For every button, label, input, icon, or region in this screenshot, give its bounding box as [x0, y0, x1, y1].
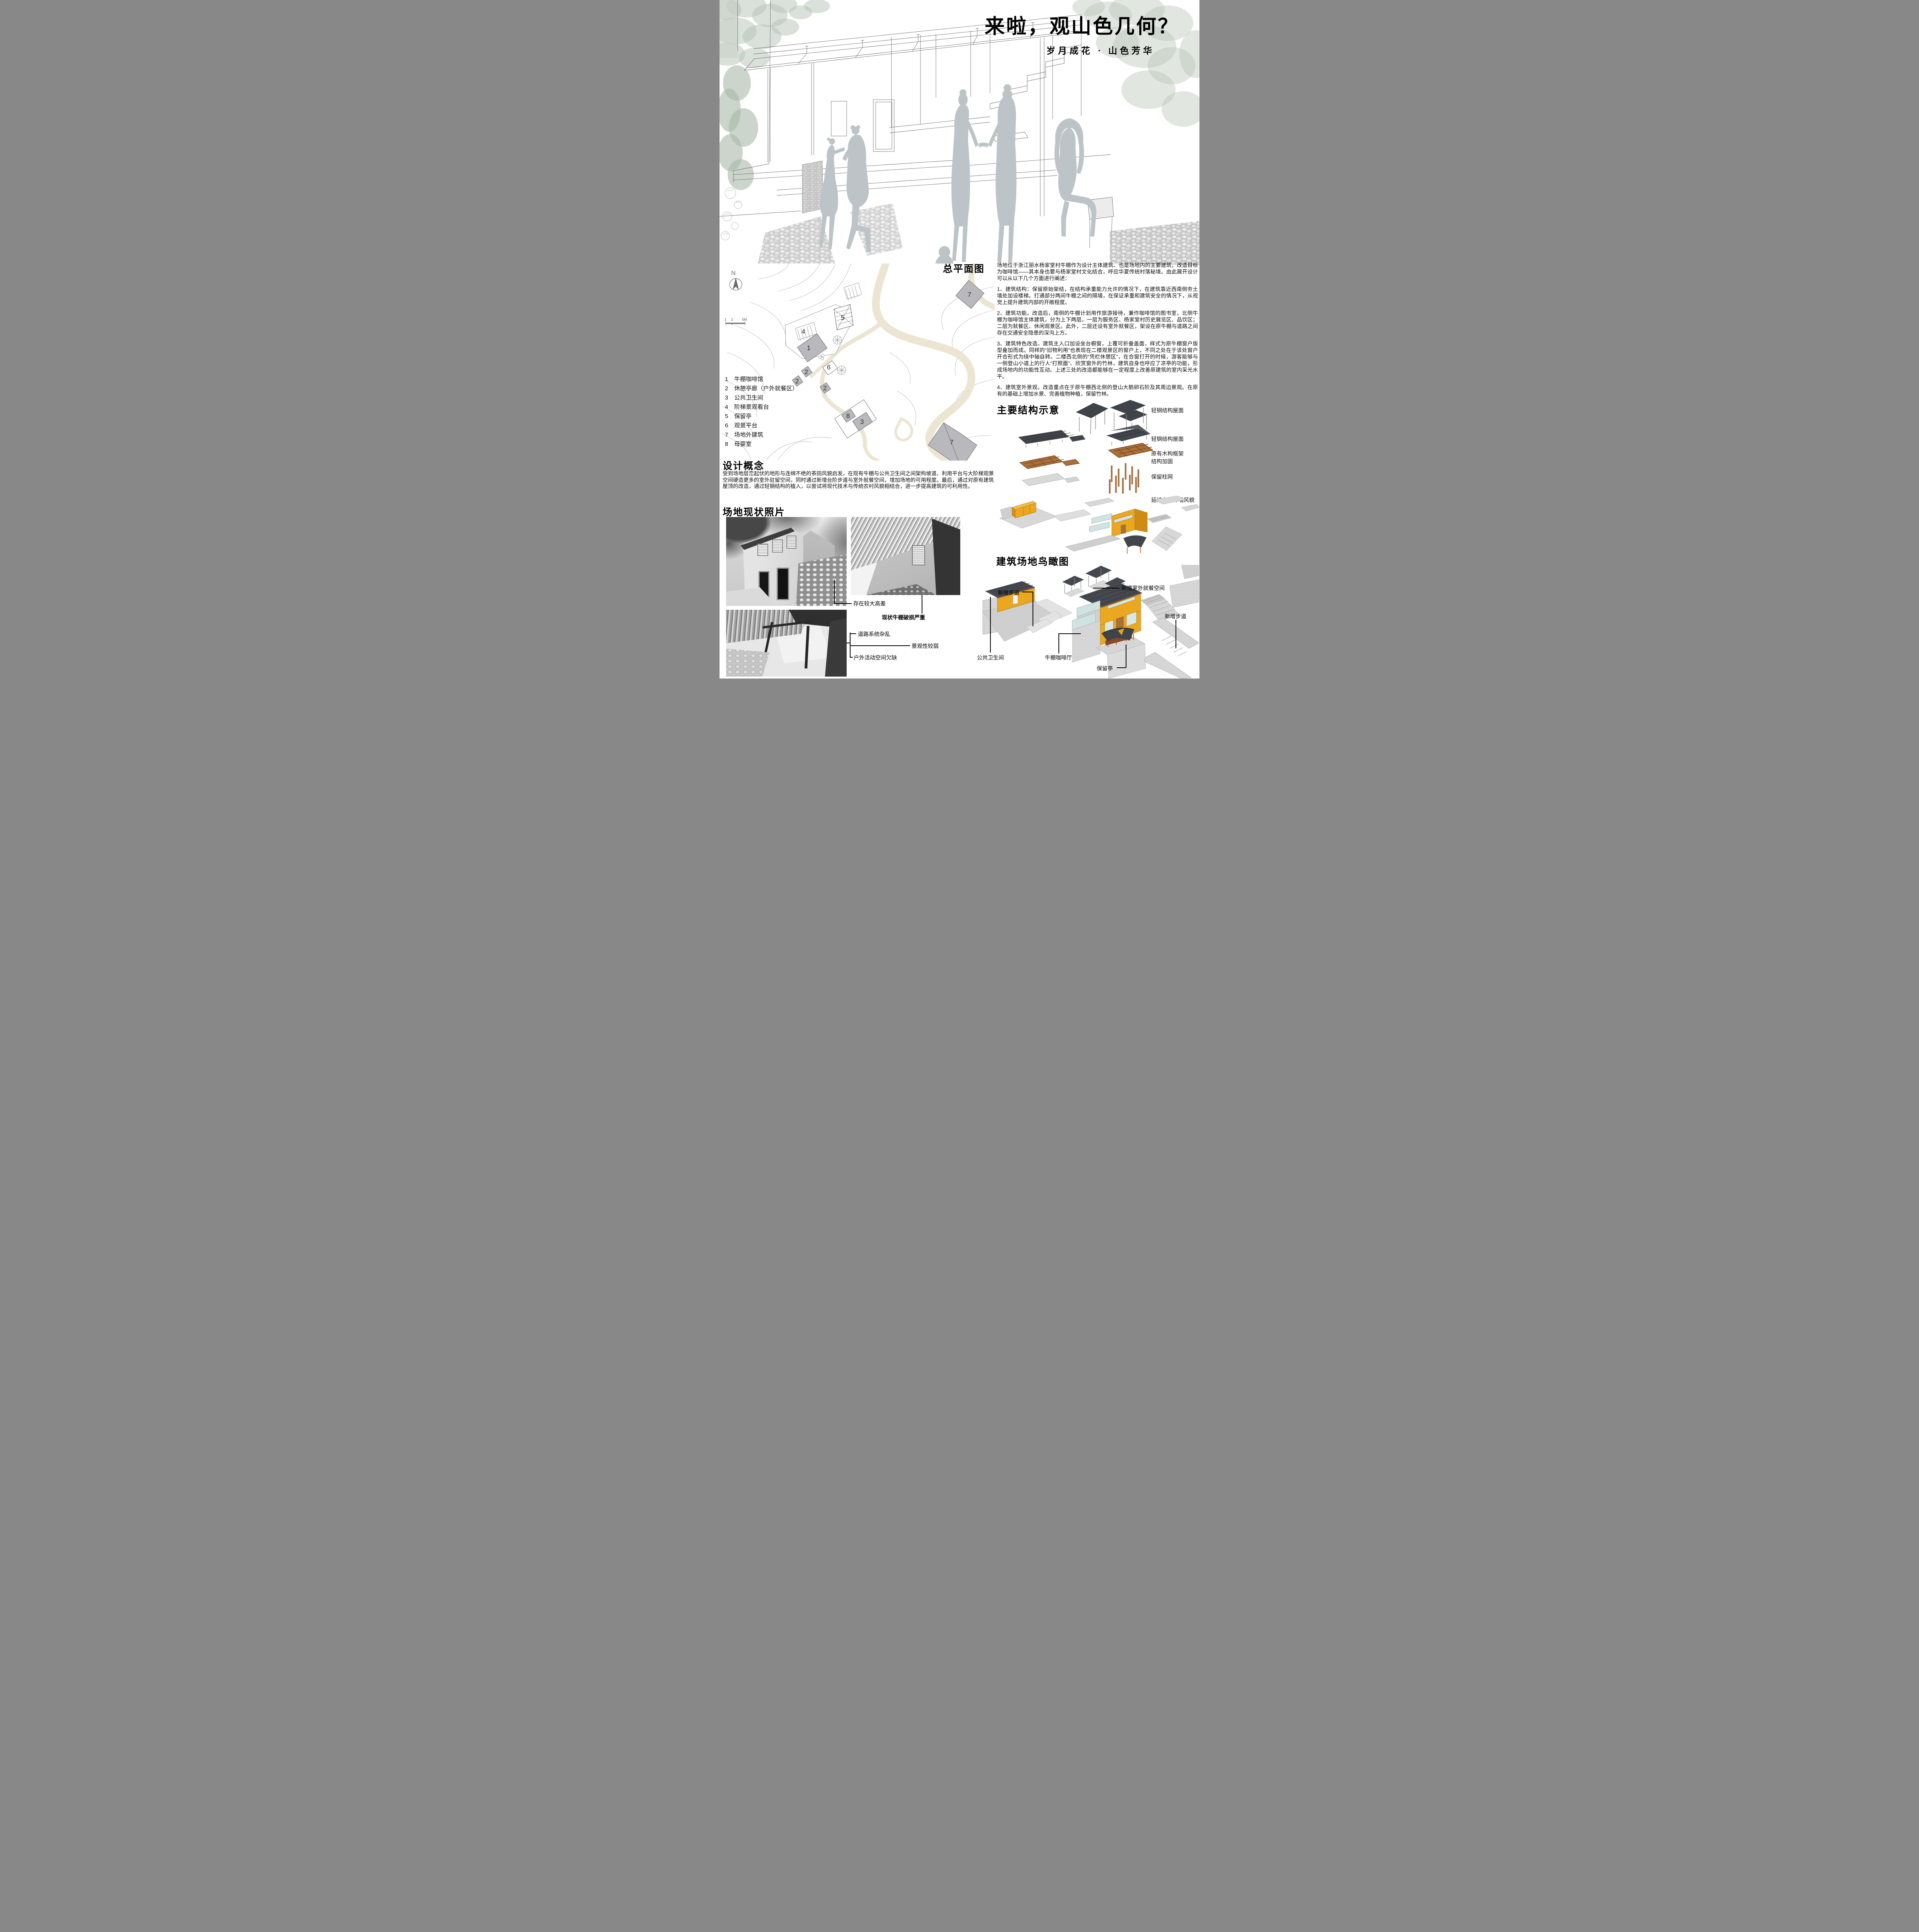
plan-num-2c: 2 [823, 384, 827, 392]
annotation-messy-roads: 道路系统杂乱 [858, 630, 890, 638]
leader-line [1176, 620, 1176, 648]
structure-diagrams [996, 400, 1199, 497]
legend-label: 牛棚咖啡馆 [734, 375, 763, 384]
legend-label: 保留亭 [734, 412, 752, 421]
leader-line [850, 657, 853, 658]
site-plan-legend: 1牛棚咖啡馆 2休憩亭廊（户外就餐区） 3公共卫生间 4阶梯景观看台 5保留亭 … [725, 375, 798, 449]
annotation-lack-outdoor-space: 户外活动空间欠缺 [854, 654, 897, 662]
hero-render [720, 0, 1199, 265]
flower-sketch [721, 188, 742, 240]
north-label: N [731, 270, 736, 277]
leader-line [850, 645, 910, 646]
leader-line [847, 643, 850, 643]
stone-wall-patch [802, 161, 823, 213]
plan-num-7-top: 7 [968, 291, 971, 298]
leader-line [922, 595, 922, 614]
overview-paragraph-2: 2、建筑功能。改造后，南侧的牛棚计划用作旅游接待，兼作咖啡馆的图书室，北侧牛棚为… [997, 310, 1198, 336]
axon-stairs [1147, 514, 1182, 551]
legend-item-4: 4阶梯景观看台 [725, 403, 798, 412]
legend-label: 母婴室 [734, 440, 752, 449]
leader-line [1126, 645, 1126, 668]
overview-paragraph-3: 3、建筑特色改造。建筑主入口加设坐台橱窗，上覆可折叠盖面，样式为原牛棚窗户版型叠… [997, 340, 1198, 380]
plan-num-3: 3 [860, 418, 864, 425]
leader-line [834, 580, 835, 604]
photo1-window-3 [786, 536, 796, 549]
legend-num: 2 [725, 384, 730, 393]
overview-paragraph-1: 1、建筑结构：保留原始架结，在结构承重能力允许的情况下，在建筑靠近西南侧夯土墙处… [997, 286, 1198, 306]
annotation-height-difference: 存在较大高差 [853, 600, 886, 607]
presentation-board: 来啦，观山色几何？ 岁月成花 · 山色芳华 [720, 0, 1199, 679]
plan-num-2a: 2 [805, 368, 808, 376]
silhouette-child [819, 138, 845, 249]
site-photo-tiled-roof [851, 517, 960, 595]
plan-num-7-bottom: 7 [950, 439, 953, 446]
scale-tick-5m: 5M [742, 318, 747, 321]
legend-label: 观景平台 [734, 421, 757, 430]
aerial-public-toilet [983, 581, 1059, 641]
legend-label: 公共卫生间 [734, 393, 763, 403]
plan-num-4: 4 [801, 328, 805, 335]
leader-line [1117, 667, 1126, 668]
leader-line [990, 597, 991, 653]
structure-label-4: 保留柱网 [1151, 473, 1173, 481]
aerial-label-new-path-left: 新增步道 [998, 589, 1019, 597]
site-photo-lane [726, 610, 847, 677]
legend-item-6: 6观景平台 [725, 421, 798, 430]
photo2-lattice-window [912, 545, 925, 565]
plan-num-5: 5 [841, 314, 844, 321]
legend-item-8: 8母婴室 [725, 440, 798, 449]
poster-title: 来啦，观山色几何？ [985, 10, 1179, 39]
leader-line [834, 603, 852, 604]
legend-num: 4 [725, 403, 730, 412]
scale-tick-2: 2 [731, 318, 733, 321]
legend-num: 7 [725, 430, 730, 440]
photo1-window-1 [757, 544, 768, 556]
legend-item-7: 7场地外建筑 [725, 430, 798, 440]
legend-label: 阶梯景观看台 [734, 403, 769, 412]
axon-pavilion-posts [1127, 547, 1140, 554]
silhouette-man-couple [978, 84, 1017, 263]
legend-item-5: 5保留亭 [725, 412, 798, 421]
aerial-view [980, 565, 1199, 679]
axon-glass-balustrades [1089, 514, 1112, 532]
legend-num: 5 [725, 412, 730, 421]
legend-item-3: 3公共卫生间 [725, 393, 798, 403]
plan-num-8: 8 [846, 412, 850, 420]
legend-num: 1 [725, 375, 730, 384]
overview-paragraph-intro: 场地位于浙江丽水杨家堂村牛棚作为设计主体建筑、也是场地内的主要建筑，改造目标为咖… [997, 262, 1198, 282]
axon-pavilion-roof [1123, 535, 1147, 548]
timber-frame-left [1020, 456, 1079, 469]
structure-label-1: 轻钢结构屋面 [1151, 435, 1184, 443]
leader-line [1033, 592, 1033, 626]
leader-line [850, 633, 856, 634]
site-plan-heading: 总平面图 [943, 261, 985, 275]
concept-paragraph: 受到场地层峦起伏的地形与连绵不绝的茶田风貌启发，在现有牛棚与公共卫生间之间架构坡… [723, 471, 994, 490]
steel-roof-panels [1018, 425, 1150, 448]
aerial-label-barn-cafe: 牛棚咖啡厅 [1045, 654, 1072, 662]
legend-label: 场地外建筑 [734, 430, 763, 440]
legend-num: 3 [725, 393, 730, 403]
wall-green-tint [720, 0, 738, 58]
legend-label: 休憩亭廊（户外就餐区） [734, 384, 798, 393]
axon-yellow-main [1112, 509, 1147, 537]
structure-label-2: 原有木构框架 [1151, 450, 1184, 457]
scale-tick-1: 1 [725, 318, 726, 321]
aerial-right-walls [1144, 565, 1199, 679]
legend-num: 6 [725, 421, 730, 430]
rammed-earth-axon [996, 496, 1199, 562]
annotation-barn-damaged: 现状牛棚破损严重 [882, 614, 925, 621]
plan-num-6: 6 [827, 364, 830, 371]
leader-line [1022, 592, 1033, 592]
timber-frame-right [1109, 443, 1153, 457]
leader-line [1093, 588, 1119, 588]
annotation-weak-landscape: 景观性较弱 [912, 642, 939, 650]
poster-subtitle: 岁月成花 · 山色芳华 [1046, 43, 1155, 56]
concept-heading: 设计概念 [723, 458, 764, 472]
structure-label-0: 轻钢结构屋面 [1151, 406, 1184, 414]
aerial-label-retained-pavilion: 保留亭 [1097, 665, 1113, 672]
retained-slab [1022, 473, 1079, 486]
legend-num: 8 [725, 440, 730, 449]
overview-paragraph-4: 4、建筑室外景观。改造重点在于原牛棚西北侧的登山大鹅卵石阶及其周边景观。在原有的… [997, 384, 1198, 397]
aerial-label-public-toilet: 公共卫生间 [977, 654, 1004, 662]
leader-line [1058, 633, 1059, 653]
legend-item-2: 2休憩亭廊（户外就餐区） [725, 384, 798, 393]
silhouette-kneeling-man [842, 125, 871, 252]
stone-paving-right [1110, 221, 1199, 265]
aerial-label-outdoor-dining: 新增室外就餐空间 [1121, 584, 1165, 592]
legend-item-1: 1牛棚咖啡馆 [725, 375, 798, 384]
aerial-label-new-path-right: 新增步道 [1165, 612, 1186, 620]
design-overview-text: 场地位于浙江丽水杨家堂村牛棚作为设计主体建筑、也是场地内的主要建筑，改造目标为咖… [997, 262, 1198, 401]
site-photo-barn-corner [726, 517, 847, 606]
silhouette-woman-couple [951, 89, 978, 262]
leader-line [1058, 633, 1081, 634]
photo1-window-2 [772, 539, 783, 553]
structure-label-3: 结构加固 [1151, 457, 1173, 465]
photos-heading: 场地现状照片 [723, 505, 785, 519]
retained-column-grid [1109, 463, 1139, 493]
tree-sketch-left [720, 65, 758, 190]
photo1-door-2 [777, 568, 789, 600]
plan-num-1: 1 [807, 344, 810, 352]
